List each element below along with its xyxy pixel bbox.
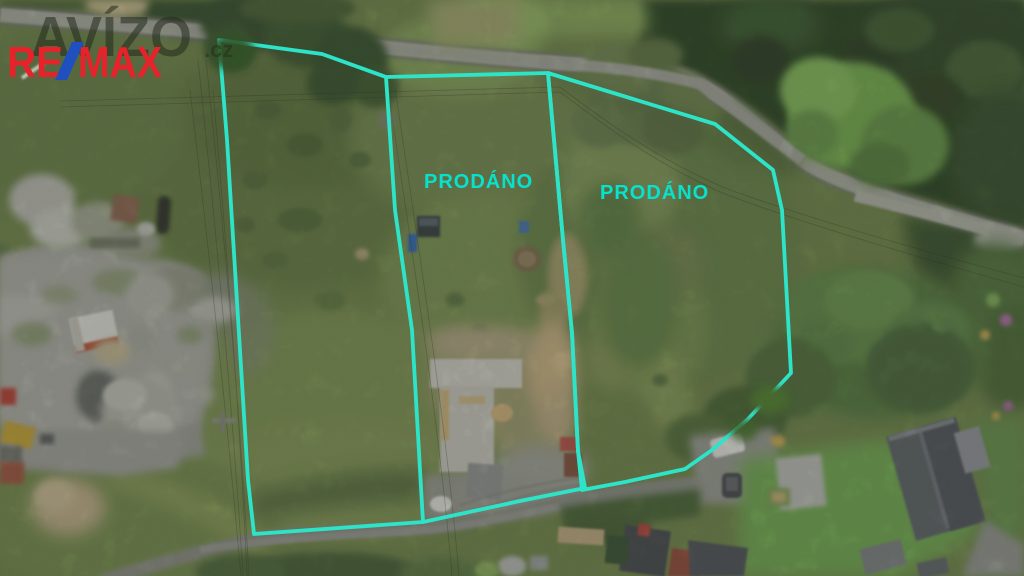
svg-text:PRODÁNO: PRODÁNO [600,181,709,204]
svg-text:RE: RE [7,38,63,87]
svg-text:MAX: MAX [78,38,162,87]
svg-text:PRODÁNO: PRODÁNO [424,170,533,193]
svg-text:.cz: .cz [204,37,233,62]
